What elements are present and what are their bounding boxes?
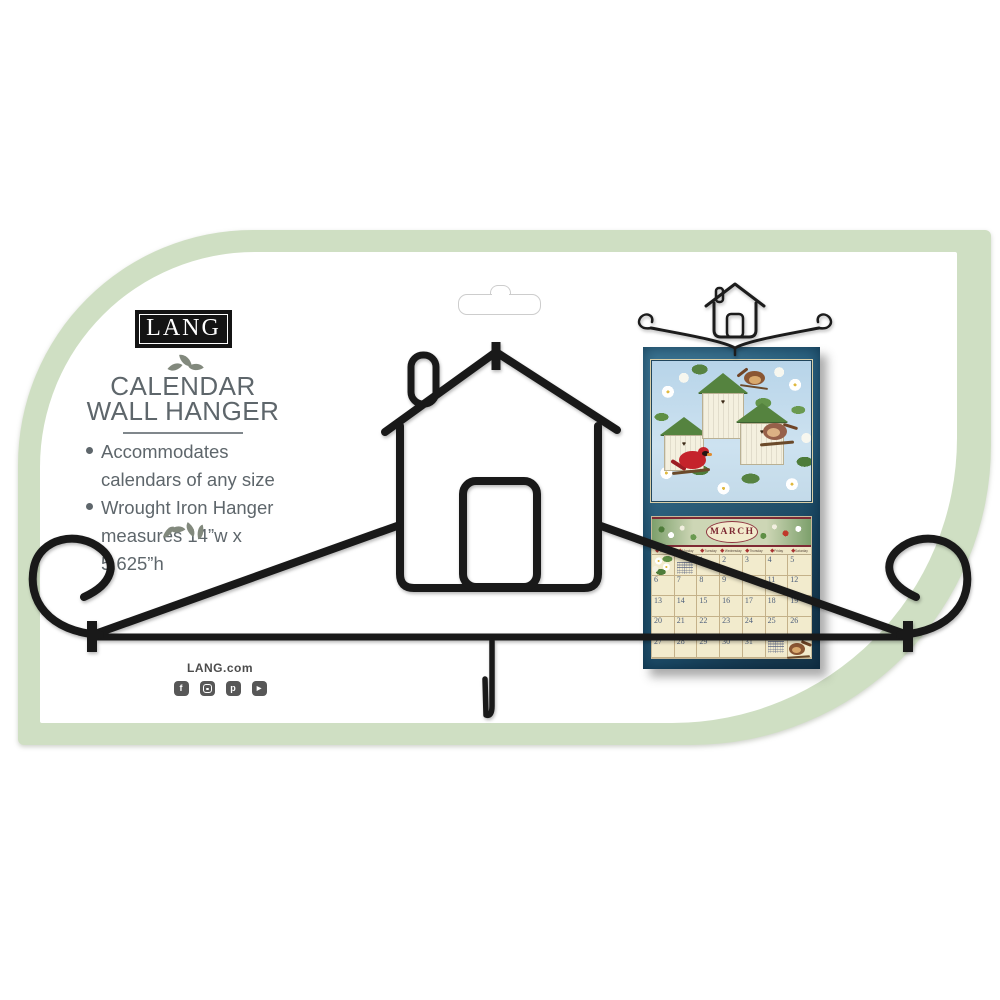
date-cell: 23 xyxy=(720,617,743,638)
date-cell: 11 xyxy=(766,576,789,597)
month-oval: MARCH xyxy=(706,521,758,543)
date-cell: 19 xyxy=(788,596,811,617)
date-cell: 20 xyxy=(652,617,675,638)
mini-month-grid xyxy=(677,562,693,574)
calendar-cover-art: ♥ ♥ ♥ xyxy=(651,360,812,502)
pinterest-icon: p xyxy=(226,681,241,696)
month-banner: MARCH xyxy=(652,517,811,547)
date-cell: 14 xyxy=(675,596,698,617)
wren-bird-top xyxy=(736,367,770,393)
date-cell: 18 xyxy=(766,596,789,617)
wren-bird-right xyxy=(758,419,798,449)
mini-month-grid xyxy=(768,641,784,653)
date-cell xyxy=(675,555,698,576)
product-packshot: LANG CALENDAR WALL HANGER Accommodates c… xyxy=(0,0,1000,1000)
instagram-icon xyxy=(200,681,215,696)
weekday-marker xyxy=(770,549,774,553)
date-cell: 7 xyxy=(675,576,698,597)
weekday-cell: Monday xyxy=(675,547,698,554)
feature-item: Accommodates calendars of any size xyxy=(86,438,286,494)
weekday-cell: Saturday xyxy=(788,547,811,554)
date-cell xyxy=(766,637,789,658)
lang-logo-text: LANG xyxy=(139,314,228,344)
product-title: CALENDAR WALL HANGER xyxy=(68,374,298,424)
weekday-marker xyxy=(721,549,725,553)
date-cell: 17 xyxy=(743,596,766,617)
weekday-cell: Friday xyxy=(766,547,789,554)
date-cell: 26 xyxy=(788,617,811,638)
lang-logo: LANG xyxy=(135,310,232,348)
date-cell: 9 xyxy=(720,576,743,597)
date-cell: 27 xyxy=(652,637,675,658)
feature-text: Accommodates calendars of any size xyxy=(101,438,286,494)
date-cell xyxy=(652,555,675,576)
date-cell: 3 xyxy=(743,555,766,576)
weekday-cell: Thursday xyxy=(743,547,766,554)
bullet-dot xyxy=(86,447,93,454)
weekday-marker xyxy=(656,549,660,553)
date-cell: 15 xyxy=(697,596,720,617)
social-icons-row: f p ▶ xyxy=(174,681,267,696)
weekday-marker xyxy=(700,549,704,553)
title-line-2: WALL HANGER xyxy=(68,399,298,424)
heart-hole: ♥ xyxy=(721,399,725,406)
leaf-ornament-bottom xyxy=(162,523,208,539)
weekday-cell: Tuesday xyxy=(697,547,720,554)
date-cell: 24 xyxy=(743,617,766,638)
date-cell: 8 xyxy=(697,576,720,597)
weekday-marker xyxy=(791,549,795,553)
date-cell: 28 xyxy=(675,637,698,658)
date-cell: 13 xyxy=(652,596,675,617)
weekday-marker xyxy=(745,549,749,553)
title-underline xyxy=(123,432,243,434)
feature-list: Accommodates calendars of any size Wroug… xyxy=(86,438,286,578)
weekday-row: Sunday Monday Tuesday Wednesday Thursday… xyxy=(652,547,811,555)
weekday-marker xyxy=(678,549,682,553)
date-cell: 22 xyxy=(697,617,720,638)
package-backing: LANG CALENDAR WALL HANGER Accommodates c… xyxy=(18,230,991,745)
card-footer: LANG.com f p ▶ xyxy=(110,661,330,696)
weekday-cell: Sunday xyxy=(652,547,675,554)
weekday-cell: Wednesday xyxy=(720,547,743,554)
hang-tab-slot xyxy=(458,294,541,315)
facebook-icon: f xyxy=(174,681,189,696)
date-cell: 1 xyxy=(697,555,720,576)
dogwood-flower-art xyxy=(652,555,674,575)
date-cell: 16 xyxy=(720,596,743,617)
month-label: MARCH xyxy=(709,527,755,537)
calendar-grid-panel: MARCH Sunday Monday Tuesday Wednesday Th… xyxy=(651,516,812,659)
bullet-dot xyxy=(86,503,93,510)
youtube-icon: ▶ xyxy=(252,681,267,696)
date-cell: 12 xyxy=(788,576,811,597)
corner-wren-bird xyxy=(786,639,813,661)
cardinal-bird xyxy=(670,445,712,477)
date-cell: 2 xyxy=(720,555,743,576)
date-cell: 21 xyxy=(675,617,698,638)
date-cell: 5 xyxy=(788,555,811,576)
date-cell: 30 xyxy=(720,637,743,658)
date-cell: 4 xyxy=(766,555,789,576)
date-cell: 29 xyxy=(697,637,720,658)
date-cell: 6 xyxy=(652,576,675,597)
date-cell: 25 xyxy=(766,617,789,638)
date-cell: 31 xyxy=(743,637,766,658)
website-label: LANG.com xyxy=(187,661,253,675)
date-cell: 10 xyxy=(743,576,766,597)
